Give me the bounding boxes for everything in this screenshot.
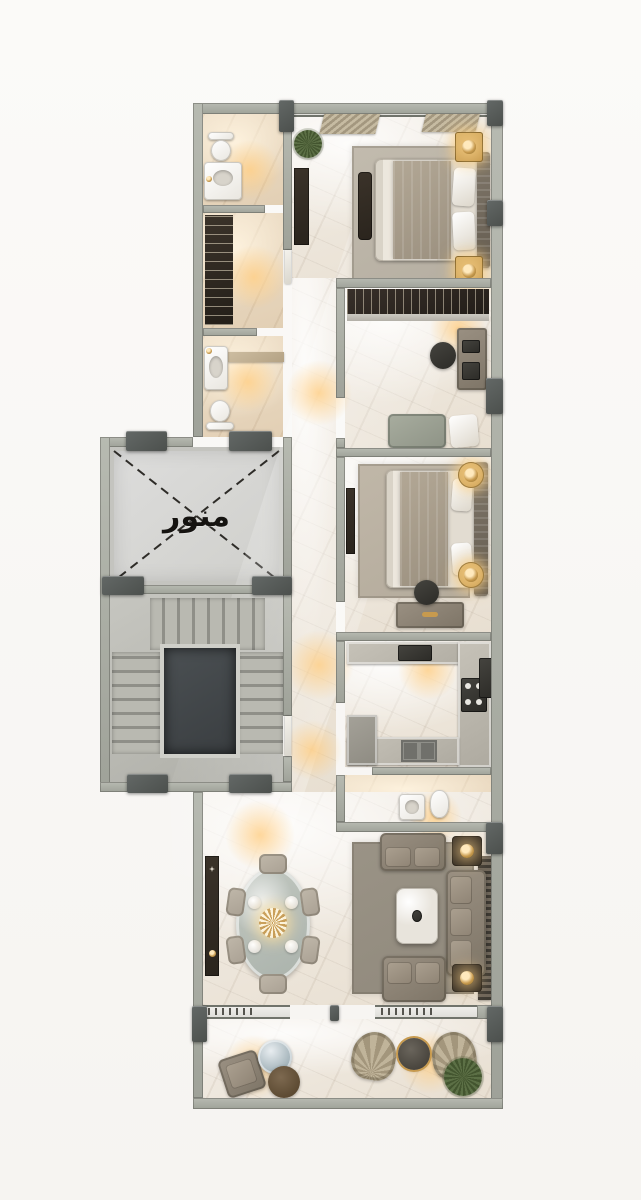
toilet bbox=[211, 140, 231, 161]
column bbox=[279, 100, 294, 132]
column bbox=[486, 378, 503, 414]
wc-sink bbox=[399, 794, 425, 820]
balcony-window bbox=[203, 1005, 290, 1019]
nightstand-lamp bbox=[455, 132, 483, 162]
daybed-pillow bbox=[449, 414, 480, 448]
loveseat-bottom bbox=[382, 956, 446, 1002]
column bbox=[126, 431, 167, 451]
floor-plan-render: منور bbox=[0, 0, 641, 1200]
wardrobe-closet bbox=[205, 215, 233, 325]
countertop-appliance bbox=[398, 645, 432, 661]
stair-wall-right-lower bbox=[283, 756, 292, 782]
coffee-table bbox=[396, 888, 438, 944]
stair-void bbox=[164, 648, 236, 754]
annex-wall-left bbox=[100, 437, 110, 792]
door-post bbox=[330, 1005, 339, 1021]
column bbox=[487, 1006, 503, 1042]
side-table-lamp bbox=[452, 836, 482, 866]
column bbox=[487, 200, 503, 226]
sink-vanity bbox=[204, 162, 242, 200]
curtain bbox=[422, 112, 481, 132]
dining-chair bbox=[259, 974, 287, 994]
toilet bbox=[210, 400, 230, 422]
wardrobe-shelf bbox=[347, 314, 489, 321]
column bbox=[487, 100, 503, 126]
stair-flight-top bbox=[150, 598, 265, 650]
kitchen-cabinet-left bbox=[347, 715, 377, 765]
faucet bbox=[206, 348, 212, 354]
bed-pillow bbox=[452, 211, 476, 250]
toilet-tank bbox=[208, 132, 234, 140]
second-bed-blanket bbox=[400, 472, 448, 586]
bedroom-desk bbox=[396, 602, 464, 628]
bed-pillow bbox=[452, 167, 477, 206]
bathroom-wall-right bbox=[283, 114, 292, 250]
sideboard bbox=[205, 856, 219, 976]
light-well-floor: منور bbox=[110, 447, 283, 585]
hallway-floor bbox=[292, 278, 336, 792]
entry-door-leaf bbox=[285, 716, 291, 756]
office-chair bbox=[430, 342, 456, 369]
balcony-side-table bbox=[398, 1038, 430, 1070]
lightwell-wall-right bbox=[283, 437, 292, 585]
tv-panel bbox=[346, 488, 355, 554]
nightstand-lamp bbox=[458, 462, 484, 488]
light-well-label: منور bbox=[110, 447, 283, 585]
column bbox=[252, 576, 292, 595]
bath1-dressing-wall bbox=[203, 205, 265, 213]
office-desk bbox=[457, 328, 487, 390]
dining-chair bbox=[299, 887, 321, 917]
column bbox=[192, 1006, 207, 1042]
pouf bbox=[268, 1066, 300, 1098]
double-sink bbox=[401, 740, 437, 762]
column bbox=[229, 774, 272, 793]
bedroom2-kitchen-wall bbox=[336, 632, 491, 641]
column bbox=[229, 431, 272, 451]
sofa-top bbox=[380, 833, 446, 871]
exterior-wall-left-lower bbox=[193, 792, 203, 1098]
office-bedroom2-wall bbox=[336, 448, 491, 457]
office-wall-left-stub bbox=[336, 438, 345, 448]
faucet bbox=[206, 176, 212, 182]
stair-flight-right bbox=[238, 652, 283, 754]
curtain bbox=[319, 112, 380, 134]
kitchen-wc-wall bbox=[372, 767, 491, 775]
master-office-wall bbox=[336, 278, 491, 288]
balcony-plant bbox=[444, 1058, 482, 1096]
chandelier bbox=[259, 908, 287, 938]
bed-bench bbox=[358, 172, 372, 240]
bedroom2-wall-left bbox=[336, 457, 345, 602]
dressing-bath2-wall bbox=[203, 328, 257, 336]
exterior-wall-right bbox=[491, 103, 503, 1109]
daybed bbox=[388, 414, 446, 448]
laptop bbox=[462, 340, 480, 353]
potted-plant bbox=[294, 130, 322, 158]
place-setting bbox=[248, 896, 261, 909]
nightstand-lamp bbox=[458, 562, 484, 588]
wc-living-wall bbox=[336, 822, 491, 832]
kitchen-wall-left bbox=[336, 641, 345, 703]
bath-shelf bbox=[228, 352, 284, 362]
side-table-lamp bbox=[452, 964, 482, 992]
wc-wall-left bbox=[336, 775, 345, 822]
toilet bbox=[430, 790, 449, 818]
toilet-tank bbox=[206, 422, 234, 430]
column bbox=[486, 822, 503, 854]
stair-flight-left bbox=[112, 652, 160, 754]
sofa-right bbox=[446, 870, 486, 976]
column bbox=[102, 576, 144, 595]
exterior-wall-top bbox=[193, 103, 503, 114]
place-setting bbox=[248, 940, 261, 953]
place-setting bbox=[285, 896, 298, 909]
dining-chair bbox=[225, 935, 247, 965]
desk-chair bbox=[414, 580, 439, 605]
balcony-window bbox=[375, 1005, 477, 1019]
tv-console bbox=[294, 168, 309, 245]
master-bed-blanket bbox=[393, 161, 451, 259]
master-door-leaf bbox=[285, 250, 291, 284]
sink-vanity bbox=[204, 346, 228, 390]
wardrobe-rail bbox=[347, 289, 489, 314]
exterior-wall-bottom bbox=[193, 1098, 503, 1109]
dining-chair bbox=[259, 854, 287, 874]
stair-wall-right bbox=[283, 594, 292, 716]
office-wall-left bbox=[336, 288, 345, 398]
column bbox=[127, 774, 168, 793]
exterior-wall-left-upper bbox=[193, 103, 203, 437]
place-setting bbox=[285, 940, 298, 953]
